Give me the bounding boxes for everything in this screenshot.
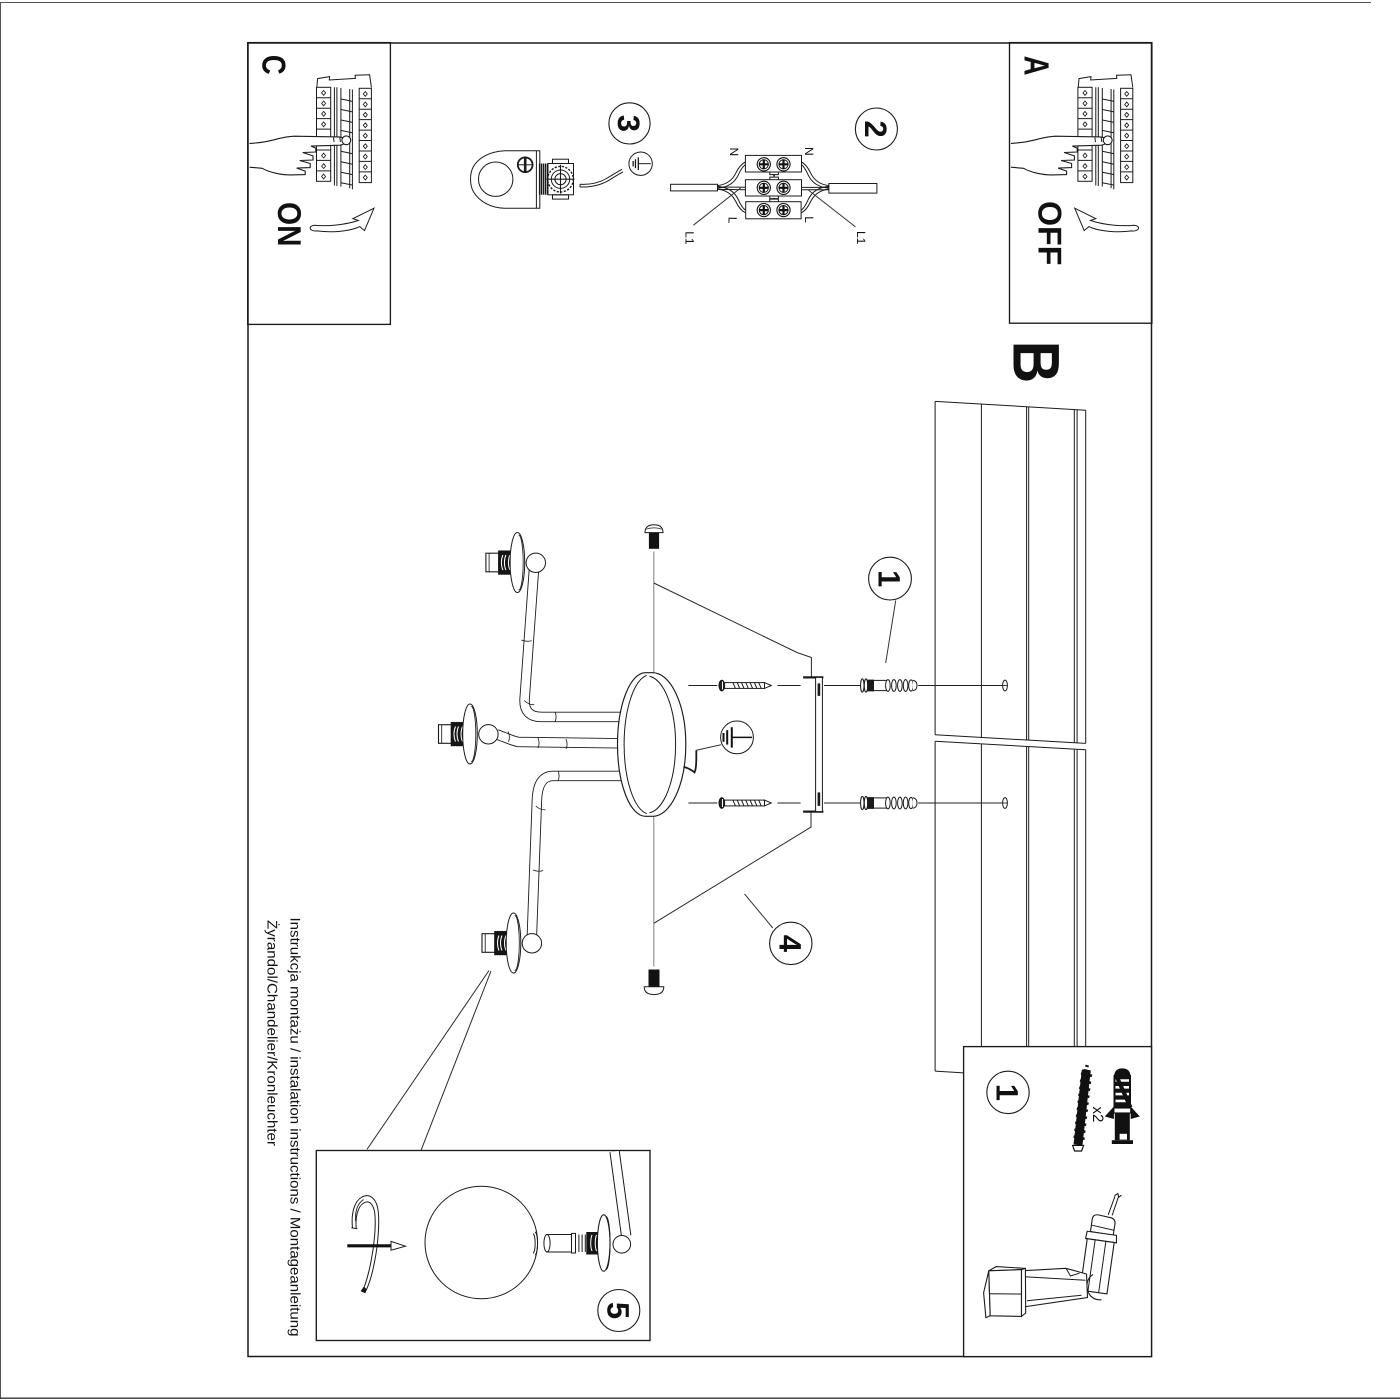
svg-text:A: A — [1017, 56, 1056, 76]
svg-text:C: C — [256, 55, 293, 75]
svg-text:B: B — [1000, 341, 1074, 383]
svg-text:Instrukcja montażu / instalati: Instrukcja montażu / instalation instruc… — [288, 918, 304, 1337]
svg-text:OFF: OFF — [1032, 201, 1069, 265]
svg-text:x2: x2 — [1089, 1107, 1106, 1123]
svg-text:5: 5 — [601, 1302, 636, 1319]
svg-text:1: 1 — [990, 1084, 1025, 1101]
svg-text:1: 1 — [872, 570, 907, 587]
svg-text:4: 4 — [773, 935, 808, 953]
svg-text:2: 2 — [858, 120, 893, 137]
svg-text:N: N — [802, 147, 816, 156]
svg-text:ON: ON — [271, 202, 308, 247]
svg-text:N: N — [727, 148, 741, 157]
svg-text:L: L — [726, 217, 740, 224]
svg-text:L1: L1 — [682, 231, 696, 245]
svg-text:L1: L1 — [854, 231, 868, 245]
svg-text:Żyrandol/Chandelier/Kronleucht: Żyrandol/Chandelier/Kronleuchter — [265, 920, 281, 1146]
svg-text:3: 3 — [611, 115, 646, 132]
svg-text:L: L — [802, 216, 816, 223]
